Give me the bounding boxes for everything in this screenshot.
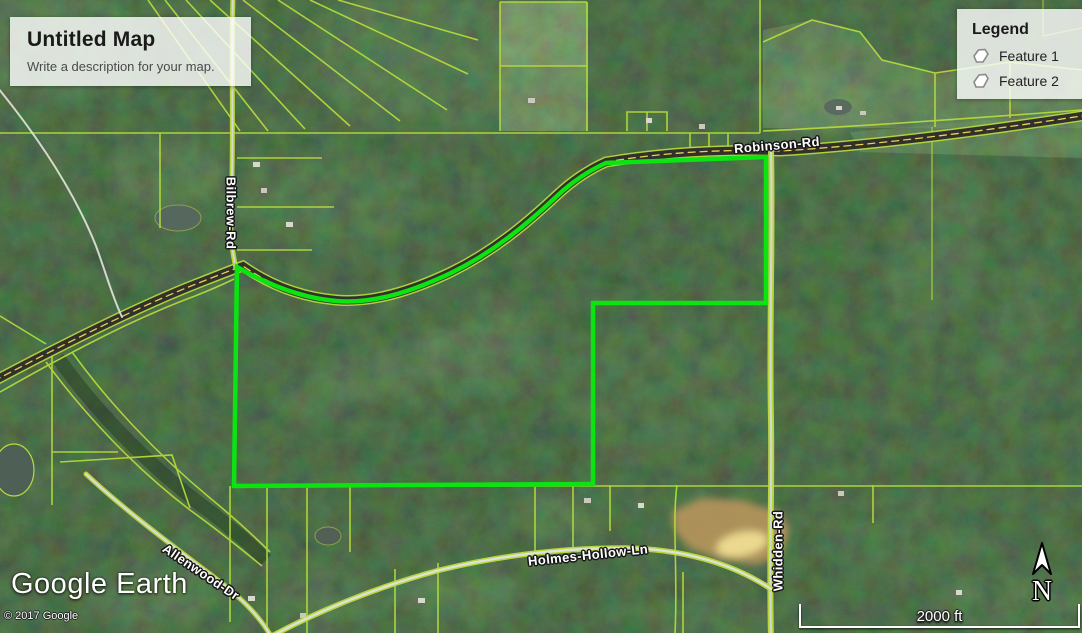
north-compass: N — [1024, 542, 1060, 605]
legend-item-label: Feature 2 — [999, 73, 1059, 89]
map-title-card: Untitled Map Write a description for you… — [10, 17, 251, 86]
north-letter: N — [1024, 579, 1060, 605]
copyright-notice: © 2017 Google — [4, 610, 78, 622]
legend-item-feature-1[interactable]: Feature 1 — [972, 48, 1082, 64]
google-earth-map-view[interactable]: Robinson-Rd Bilbrew-Rd Whidden-Rd Holmes… — [0, 0, 1082, 633]
road-label-bilbrew: Bilbrew-Rd — [224, 177, 239, 250]
map-description[interactable]: Write a description for your map. — [27, 59, 251, 74]
legend-item-feature-2[interactable]: Feature 2 — [972, 73, 1082, 89]
legend-item-label: Feature 1 — [999, 48, 1059, 64]
satellite-map-canvas[interactable] — [0, 0, 1082, 633]
polygon-feature-icon — [972, 48, 990, 64]
north-arrow-icon — [1030, 542, 1054, 576]
legend-title: Legend — [972, 21, 1082, 39]
scale-bar: 2000 ft — [799, 604, 1080, 628]
road-label-whidden: Whidden-Rd — [771, 511, 786, 592]
legend-card: Legend Feature 1 Feature 2 — [957, 9, 1082, 99]
polygon-feature-icon — [972, 73, 990, 89]
map-title[interactable]: Untitled Map — [27, 28, 251, 52]
google-earth-logo: Google Earth — [11, 568, 188, 601]
scale-bar-label: 2000 ft — [801, 608, 1078, 625]
